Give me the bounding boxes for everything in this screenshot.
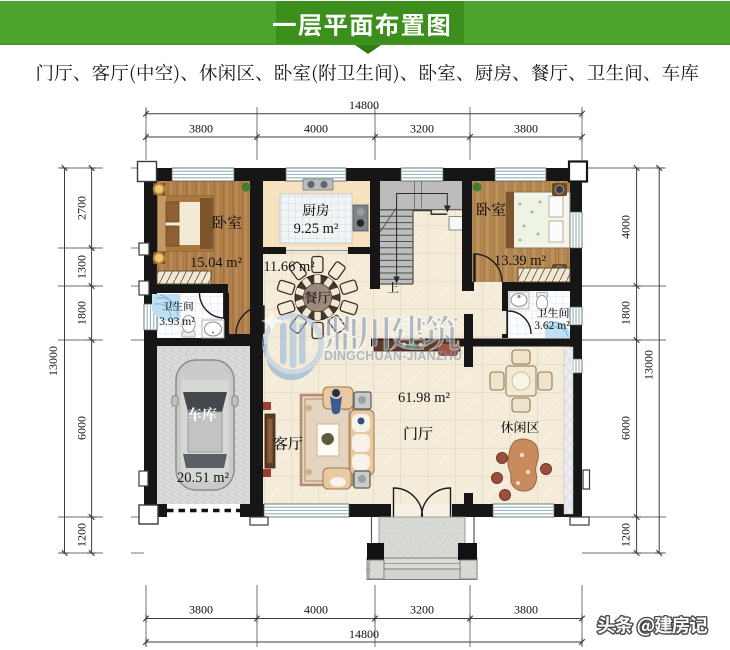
- svg-text:1300: 1300: [75, 255, 89, 279]
- svg-text:3.93 m²: 3.93 m²: [159, 316, 195, 328]
- svg-text:1800: 1800: [75, 301, 89, 325]
- svg-text:15.04 m²: 15.04 m²: [190, 255, 243, 271]
- svg-text:14800: 14800: [349, 98, 379, 112]
- svg-text:13.39 m²: 13.39 m²: [494, 253, 547, 269]
- svg-text:3800: 3800: [514, 122, 538, 136]
- svg-text:3200: 3200: [410, 603, 434, 617]
- svg-text:4000: 4000: [619, 215, 633, 239]
- svg-text:9.25 m²: 9.25 m²: [294, 221, 339, 237]
- svg-text:2700: 2700: [75, 196, 89, 220]
- svg-text:DINGCHUAN-JIANZHU: DINGCHUAN-JIANZHU: [324, 349, 462, 363]
- svg-text:3800: 3800: [514, 603, 538, 617]
- svg-text:1800: 1800: [619, 301, 633, 325]
- svg-text:11.66 m²: 11.66 m²: [263, 259, 315, 275]
- svg-text:1200: 1200: [619, 523, 633, 547]
- svg-text:3800: 3800: [189, 122, 213, 136]
- svg-text:4000: 4000: [304, 603, 328, 617]
- svg-text:6000: 6000: [75, 416, 89, 440]
- svg-text:13000: 13000: [642, 350, 656, 380]
- svg-text:6000: 6000: [619, 416, 633, 440]
- svg-text:61.98 m²: 61.98 m²: [398, 390, 451, 406]
- svg-text:14800: 14800: [349, 627, 379, 641]
- svg-text:4000: 4000: [304, 122, 328, 136]
- svg-text:1200: 1200: [75, 523, 89, 547]
- svg-text:3200: 3200: [410, 122, 434, 136]
- svg-text:3800: 3800: [189, 603, 213, 617]
- svg-text:20.51 m²: 20.51 m²: [177, 470, 230, 486]
- svg-text:13000: 13000: [46, 346, 60, 376]
- svg-text:3.62 m²: 3.62 m²: [534, 320, 570, 332]
